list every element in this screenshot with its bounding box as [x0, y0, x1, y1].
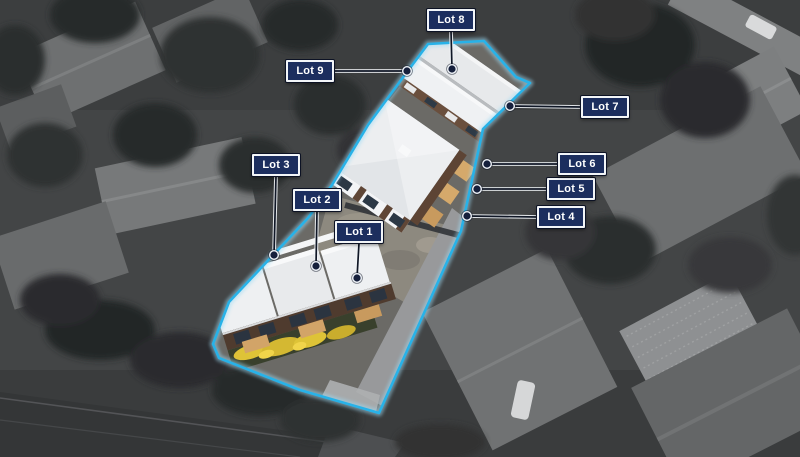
aerial-lot-map: Lot 1 Lot 2 Lot 3 Lot 4 Lot 5 Lot 6 Lot … [0, 0, 800, 457]
aerial-photo-scene [0, 0, 800, 457]
